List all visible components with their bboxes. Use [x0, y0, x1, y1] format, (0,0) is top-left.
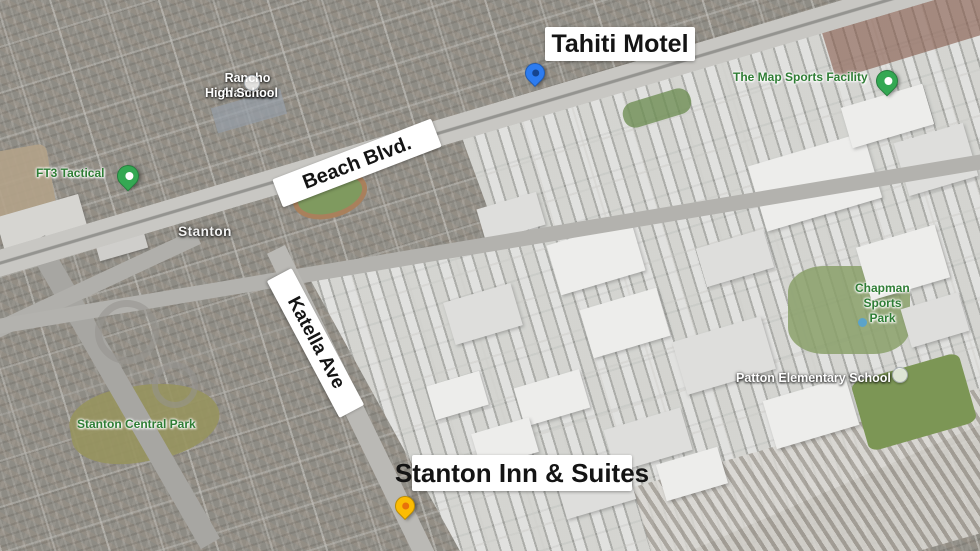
callout-tahiti-motel[interactable]: Tahiti Motel	[545, 27, 695, 61]
poi-label-ft3-tactical[interactable]: FT3 Tactical	[36, 166, 104, 180]
interchange-ramp	[152, 362, 198, 408]
aerial-map-canvas[interactable]: Rancho Alamitos High School FT3 Tactical…	[0, 0, 980, 551]
school-icon[interactable]	[244, 75, 260, 91]
poi-label-rancho-alamitos-high-school[interactable]: Rancho Alamitos High School	[120, 71, 290, 86]
poi-label-line: High School	[205, 86, 278, 101]
poi-label-chapman-sports-park[interactable]: Chapman Sports Park	[800, 281, 910, 296]
poi-label-stanton-city[interactable]: Stanton	[160, 224, 250, 239]
school-icon[interactable]	[892, 367, 908, 383]
poi-label-line: Chapman	[855, 281, 910, 296]
poi-label-line: Sports Park	[855, 296, 910, 326]
poi-label-stanton-central-park[interactable]: Stanton Central Park	[77, 417, 196, 431]
interchange-ramp	[95, 300, 159, 364]
poi-label-patton-elementary-school[interactable]: Patton Elementary School	[736, 371, 891, 385]
callout-stanton-inn-suites[interactable]: Stanton Inn & Suites	[412, 455, 632, 491]
poi-label-the-map-sports-facility[interactable]: The Map Sports Facility	[733, 70, 868, 84]
